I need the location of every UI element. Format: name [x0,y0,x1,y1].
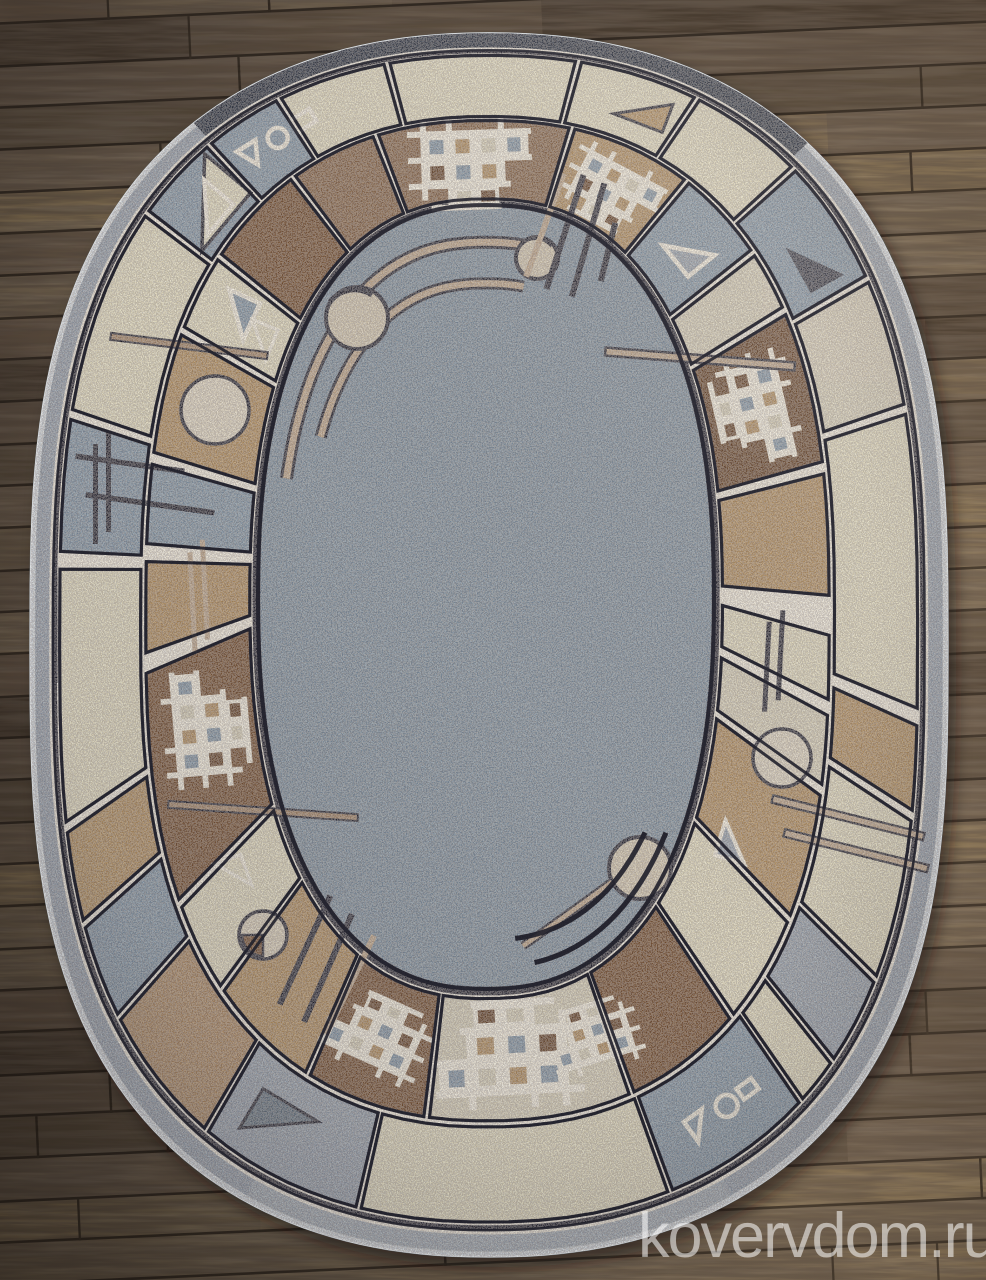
svg-text:kovervdom.ru: kovervdom.ru [638,1201,986,1271]
